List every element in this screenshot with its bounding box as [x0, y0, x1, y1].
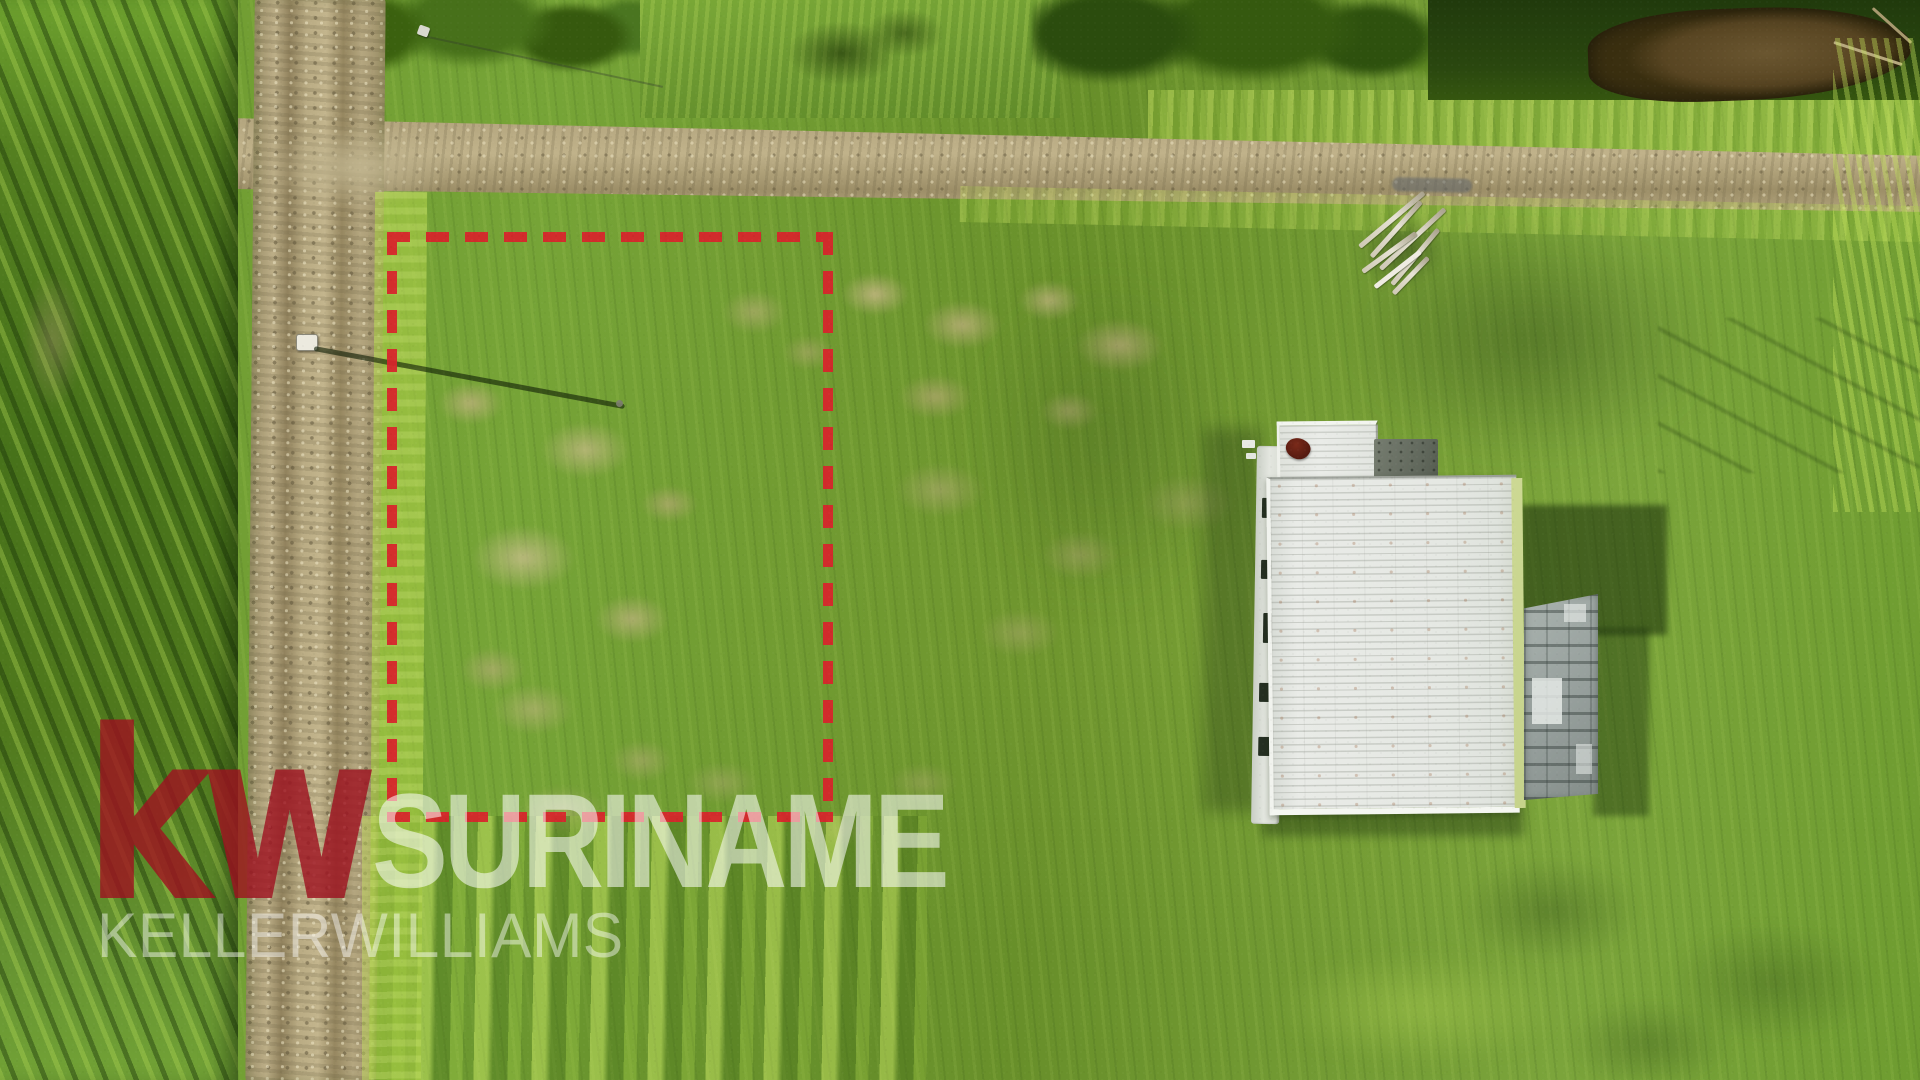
unfinished-annex-frame	[1524, 594, 1598, 800]
aerial-drone-photo: kw SURINAME KELLERWILLIAMS	[0, 0, 1920, 1080]
grass-top-middle	[640, 0, 1060, 118]
annex-panel	[1564, 604, 1586, 622]
suriname-watermark-text: SURINAME	[372, 775, 945, 909]
kw-logo-watermark: kw	[84, 700, 367, 935]
building-metal-roof	[1266, 475, 1520, 816]
roof-edge-strip	[1511, 478, 1525, 808]
bright-grass-bottom-center	[1238, 938, 1600, 1080]
annex-panel	[1576, 744, 1592, 774]
building-eave	[1242, 440, 1255, 448]
kellerwilliams-watermark-text: KELLERWILLIAMS	[97, 905, 624, 968]
building-eave	[1246, 453, 1256, 459]
hedge-top-right	[1032, 0, 1456, 102]
boundary-top-line	[387, 232, 833, 242]
annex-panel	[1532, 678, 1562, 724]
wood-pile	[1347, 201, 1459, 296]
road-junction	[252, 118, 467, 216]
left-dry-patch	[14, 250, 92, 430]
boundary-right-line	[823, 232, 833, 822]
lot-boundary-outline	[387, 232, 833, 822]
house-under-construction	[1240, 413, 1670, 833]
concrete-pad	[1374, 439, 1438, 479]
boundary-left-line	[387, 232, 397, 822]
